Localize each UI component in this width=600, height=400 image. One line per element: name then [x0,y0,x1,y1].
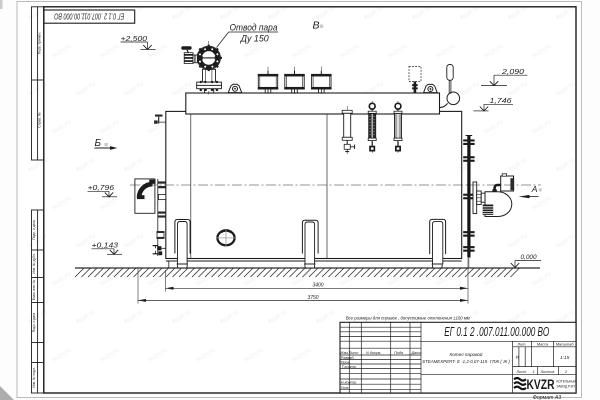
svg-text:Лист: Лист [516,370,527,374]
svg-text:3400: 3400 [312,283,323,289]
svg-text:Масса: Масса [537,343,548,347]
svg-text:ЗАВОД РЭП: ЗАВОД РЭП [557,385,576,389]
svg-text:1,746: 1,746 [490,96,513,105]
svg-text:Подп. и дата: Подп. и дата [32,313,36,333]
svg-text:Перв. примен.: Перв. примен. [38,32,42,55]
svg-text:Взам. инв. №: Взам. инв. № [32,279,36,300]
svg-text:Все размеры для справок , допу: Все размеры для справок , допустимые отк… [346,315,471,320]
svg-text:Подп. и дата: Подп. и дата [32,220,36,240]
svg-text:Отвод пара: Отвод пара [230,23,278,33]
svg-text:N докум.: N докум. [366,351,381,355]
svg-text:ЕГ 0.1 2 .007.011.00.000 ВО: ЕГ 0.1 2 .007.011.00.000 ВО [444,324,549,339]
svg-text:Т.контр.: Т.контр. [342,365,357,369]
svg-text:3750: 3750 [307,295,318,301]
svg-text:Инв. № дубл.: Инв. № дубл. [32,253,36,273]
svg-text:Дата: Дата [411,351,422,355]
svg-text:Формат А3: Формат А3 [533,395,561,400]
svg-text:Справ. №: Справ. № [38,112,42,128]
svg-text:Пров.: Пров. [341,361,351,365]
svg-text:Котел паровой: Котел паровой [450,351,483,357]
svg-text:КОТЕЛЬНЫЙ: КОТЕЛЬНЫЙ [557,380,578,384]
svg-text:+0,796: +0,796 [88,183,115,192]
svg-text:ЕГ 0.1 2 .007.011.00.000 ВО: ЕГ 0.1 2 .007.011.00.000 ВО [54,12,124,22]
svg-text:1: 1 [533,370,535,374]
svg-text:0,000: 0,000 [521,254,537,261]
svg-text:Н.контр.: Н.контр. [341,381,357,385]
svg-text:Изм.Лист: Изм.Лист [341,351,359,355]
svg-text:Листов: Листов [540,370,555,374]
svg-text:1:15: 1:15 [560,355,570,361]
svg-text:KVZR: KVZR [527,377,555,392]
svg-text:+0,143: +0,143 [92,241,119,250]
svg-text:Утв.: Утв. [341,386,350,390]
svg-text:В: В [313,20,320,32]
svg-text:Инв. № подл.: Инв. № подл. [32,367,36,388]
svg-text:+2,500: +2,500 [121,34,148,43]
svg-text:Лит.: Лит. [517,343,527,347]
svg-text:Подп.: Подп. [394,351,404,355]
svg-text:Разраб.: Разраб. [341,356,355,360]
svg-text:Ду 150: Ду 150 [240,33,270,43]
svg-text:Масштаб: Масштаб [556,343,575,347]
svg-text:STEAMEXPERT- Е -1,2-0,07-115-: STEAMEXPERT- Е -1,2-0,07-115- ГЛЖ ( Ж ) [422,359,510,364]
svg-text:2,090: 2,090 [501,67,525,76]
